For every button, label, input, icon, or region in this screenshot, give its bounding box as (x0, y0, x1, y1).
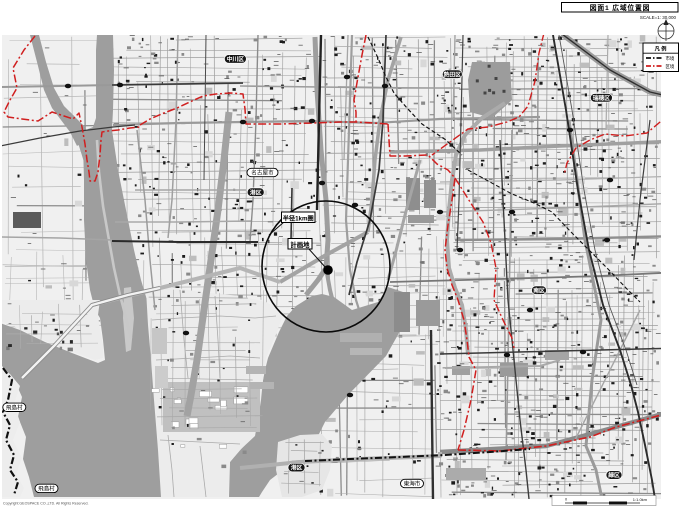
svg-text:凡 例: 凡 例 (655, 45, 667, 53)
svg-text:Copyright:GEOSPACE CO.,LTD. Al: Copyright:GEOSPACE CO.,LTD. All Rights R… (3, 502, 89, 506)
svg-text:瑞穂区: 瑞穂区 (593, 94, 611, 102)
svg-text:名古屋市: 名古屋市 (251, 169, 274, 177)
svg-text:中川区: 中川区 (227, 55, 245, 63)
svg-text:区境: 区境 (666, 63, 675, 70)
svg-text:1:1.0km: 1:1.0km (633, 497, 648, 502)
svg-text:緑区: 緑区 (608, 471, 620, 479)
svg-text:SCALE=1: 30,000: SCALE=1: 30,000 (640, 15, 677, 20)
svg-text:港区: 港区 (291, 464, 303, 472)
svg-text:半径1km圏: 半径1km圏 (283, 214, 314, 222)
svg-text:熱田区: 熱田区 (444, 70, 462, 78)
svg-text:飛島村: 飛島村 (6, 403, 23, 411)
svg-text:市境: 市境 (666, 55, 675, 62)
svg-text:東海市: 東海市 (404, 480, 421, 488)
svg-text:0: 0 (565, 498, 567, 502)
svg-text:飛島村: 飛島村 (38, 484, 55, 492)
svg-text:計画地: 計画地 (290, 240, 310, 249)
svg-text:図面1 広域位置図: 図面1 広域位置図 (590, 3, 650, 12)
svg-text:南区: 南区 (533, 286, 545, 294)
svg-text:港区: 港区 (250, 188, 262, 196)
